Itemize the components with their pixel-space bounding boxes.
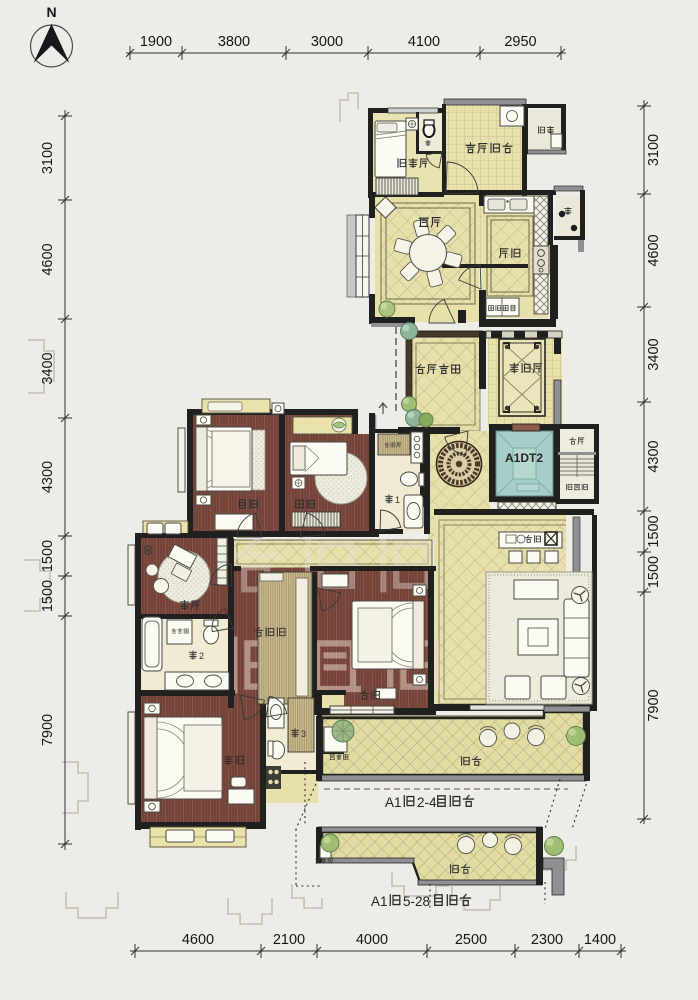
svg-text:1: 1 — [395, 495, 400, 505]
svg-text:2100: 2100 — [273, 932, 305, 948]
svg-text:4600: 4600 — [646, 234, 662, 266]
svg-text:7900: 7900 — [646, 689, 662, 721]
svg-text:3400: 3400 — [40, 352, 56, 384]
svg-text:N: N — [46, 4, 56, 20]
svg-text:4300: 4300 — [646, 440, 662, 472]
svg-text:4600: 4600 — [182, 932, 214, 948]
svg-text:3400: 3400 — [646, 338, 662, 370]
svg-text:1900: 1900 — [140, 34, 172, 50]
svg-text:2950: 2950 — [504, 34, 536, 50]
svg-text:1500: 1500 — [646, 556, 662, 588]
svg-text:2500: 2500 — [455, 932, 487, 948]
svg-text:4100: 4100 — [408, 34, 440, 50]
svg-text:A1: A1 — [385, 795, 402, 810]
svg-text:4000: 4000 — [356, 932, 388, 948]
svg-text:2: 2 — [199, 651, 204, 661]
svg-text:5-28: 5-28 — [403, 894, 430, 909]
svg-text:3100: 3100 — [40, 142, 56, 174]
svg-text:1500: 1500 — [40, 580, 56, 612]
svg-text:7900: 7900 — [40, 714, 56, 746]
svg-text:1400: 1400 — [584, 932, 616, 948]
svg-text:2300: 2300 — [531, 932, 563, 948]
svg-text:3: 3 — [301, 729, 306, 739]
svg-text:4600: 4600 — [40, 243, 56, 275]
svg-text:2-4: 2-4 — [417, 795, 437, 810]
svg-text:3800: 3800 — [218, 34, 250, 50]
svg-text:3000: 3000 — [311, 34, 343, 50]
svg-text:3100: 3100 — [646, 134, 662, 166]
svg-text:A1: A1 — [371, 894, 388, 909]
svg-text:4300: 4300 — [40, 461, 56, 493]
svg-text:1500: 1500 — [40, 540, 56, 572]
svg-text:1500: 1500 — [646, 515, 662, 547]
svg-text:A1DT2: A1DT2 — [505, 451, 543, 465]
